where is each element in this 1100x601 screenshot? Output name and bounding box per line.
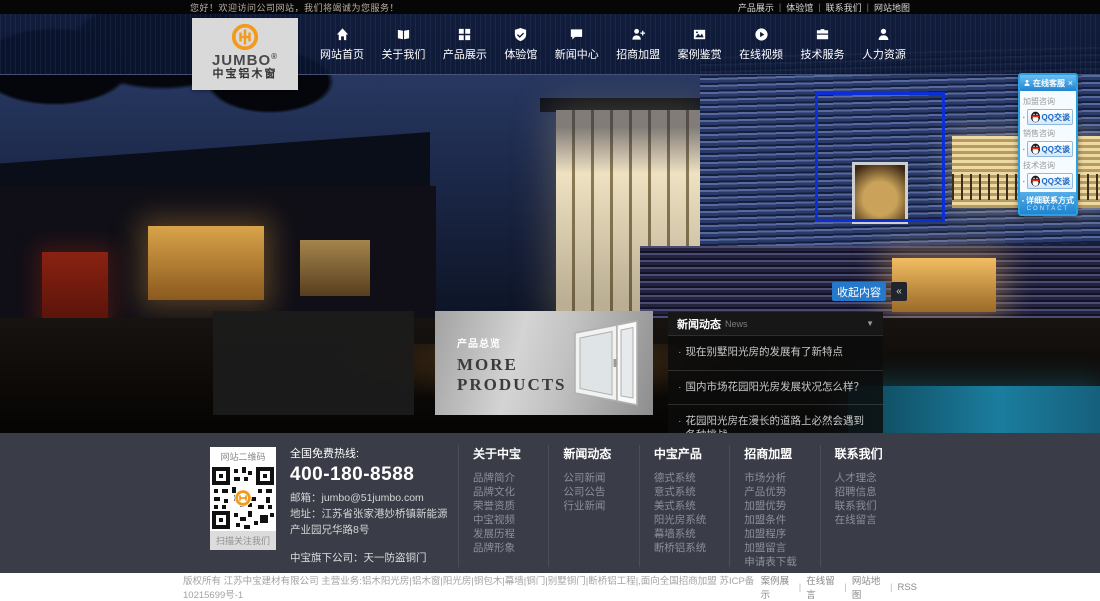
- topbar-link-contact[interactable]: 联系我们: [826, 1, 862, 14]
- hero-banner: JUMBO® 中宝铝木窗 网站首页 关于我们 产品展示 体验馆: [0, 14, 1100, 433]
- subsidiary-line: 中宝旗下公司：天一防盗铜门: [290, 550, 452, 565]
- hero-warm-window-2: [300, 240, 370, 296]
- topbar-links: 产品展示 | 体验馆 | 联系我们 | 网站地图: [738, 1, 910, 14]
- footer-link[interactable]: 阳光房系统: [654, 513, 729, 527]
- footer-link[interactable]: 美式系统: [654, 499, 729, 513]
- news-item[interactable]: ·花园阳光房在漫长的道路上必然会遇到各种挑战: [668, 404, 883, 433]
- footer-link[interactable]: 意式系统: [654, 485, 729, 499]
- shield-icon: [513, 27, 528, 42]
- news-subtitle: News: [725, 319, 748, 329]
- footer-link[interactable]: 品牌简介: [473, 471, 548, 485]
- footer-link[interactable]: 产品优势: [744, 485, 819, 499]
- footer-columns: 关于中宝 品牌简介 品牌文化 荣誉资质 中宝视频 发展历程 品牌形象 新闻动态 …: [458, 445, 910, 567]
- bottom-bar: 版权所有 江苏中宝建材有限公司 主营业务:铝木阳光房|铝木窗|阳光房|铜包木|幕…: [0, 573, 1100, 601]
- news-collapse-arrow[interactable]: ▼: [866, 319, 874, 328]
- footer-col-join: 招商加盟 市场分析 产品优势 加盟优势 加盟条件 加盟程序 加盟留言 申请表下载: [729, 445, 819, 567]
- qr-caption: 扫描关注我们: [210, 531, 276, 550]
- footer-link[interactable]: 品牌形象: [473, 541, 548, 555]
- nav-item-video[interactable]: 在线视频: [737, 23, 785, 66]
- topbar-link-sitemap[interactable]: 网站地图: [874, 1, 910, 14]
- play-icon: [754, 27, 769, 42]
- person-plus-icon: [631, 27, 646, 42]
- hero-pool: [848, 386, 1100, 433]
- hotline-phone: 400-180-8588: [290, 464, 452, 486]
- jumbo-logo-icon: [230, 22, 260, 52]
- copyright-text: 版权所有 江苏中宝建材有限公司 主营业务:铝木阳光房|铝木窗|阳光房|铜包木|幕…: [183, 573, 761, 601]
- qq-penguin-icon: [1030, 111, 1041, 123]
- collapse-control: 收起内容 «: [832, 282, 907, 301]
- qq-penguin-icon: [1030, 175, 1041, 187]
- footer-link[interactable]: 品牌文化: [473, 485, 548, 499]
- site-logo[interactable]: JUMBO® 中宝铝木窗: [192, 18, 298, 90]
- footer-link[interactable]: 断桥铝系统: [654, 541, 729, 555]
- footer-col-news: 新闻动态 公司新闻 公司公告 行业新闻: [548, 445, 638, 567]
- footer-link[interactable]: 发展历程: [473, 527, 548, 541]
- qr-code-image: [210, 465, 276, 531]
- footer-link[interactable]: 幕墙系统: [654, 527, 729, 541]
- footer-col-products: 中宝产品 德式系统 意式系统 美式系统 阳光房系统 幕墙系统 断桥铝系统: [639, 445, 729, 567]
- close-icon[interactable]: ×: [1068, 79, 1073, 88]
- person-icon: [876, 27, 891, 42]
- footer-link[interactable]: 申请表下载: [744, 555, 819, 569]
- footer-link[interactable]: 在线留言: [835, 513, 910, 527]
- contact-details-button[interactable]: 详细联系方式 CONTACT: [1020, 192, 1076, 214]
- footer-link[interactable]: 行业新闻: [563, 499, 638, 513]
- top-bar: 您好！欢迎访问公司网站，我们将竭诚为您服务！ 产品展示 | 体验馆 | 联系我们…: [0, 0, 1100, 14]
- welcome-text: 您好！欢迎访问公司网站，我们将竭诚为您服务！: [190, 1, 399, 14]
- contact-address: 地址：江苏省张家港妙桥镇新能源产业园兄华路8号: [290, 507, 452, 539]
- footer-link[interactable]: 德式系统: [654, 471, 729, 485]
- collapse-button[interactable]: 收起内容: [832, 282, 886, 301]
- logo-subtitle: 中宝铝木窗: [213, 68, 278, 81]
- service-panel-title: 在线客服: [1033, 78, 1065, 89]
- footer-link[interactable]: 人才理念: [835, 471, 910, 485]
- hero-glow-window: [892, 258, 996, 312]
- footer-col-about: 关于中宝 品牌简介 品牌文化 荣誉资质 中宝视频 发展历程 品牌形象: [458, 445, 548, 567]
- qq-chat-button[interactable]: QQ交谈: [1027, 109, 1073, 125]
- hero-warm-window: [148, 226, 264, 300]
- nav-item-home[interactable]: 网站首页: [318, 23, 366, 66]
- more-products-text: MORE PRODUCTS: [457, 355, 567, 396]
- nav-item-tech[interactable]: 技术服务: [799, 23, 847, 66]
- grid-icon: [457, 27, 472, 42]
- topbar-link-products[interactable]: 产品展示: [738, 1, 774, 14]
- nav-item-about[interactable]: 关于我们: [379, 23, 427, 66]
- footer-link[interactable]: 荣誉资质: [473, 499, 548, 513]
- selection-rectangle: [815, 92, 945, 222]
- book-icon: [396, 27, 411, 42]
- check-icon: [1023, 145, 1025, 154]
- nav-item-experience[interactable]: 体验馆: [502, 23, 539, 66]
- footer-link[interactable]: 联系我们: [835, 499, 910, 513]
- collapse-arrow-button[interactable]: «: [891, 282, 907, 301]
- products-overview-label: 产品总览: [457, 335, 501, 350]
- nav-item-join[interactable]: 招商加盟: [614, 23, 662, 66]
- nav-item-news[interactable]: 新闻中心: [553, 23, 601, 66]
- hotline-label: 全国免费热线:: [290, 445, 452, 461]
- footer-link[interactable]: 加盟条件: [744, 513, 819, 527]
- qr-card: 网站二维码: [210, 447, 276, 550]
- qq-chat-button[interactable]: QQ交谈: [1027, 173, 1073, 189]
- qr-title: 网站二维码: [210, 447, 276, 465]
- online-service-panel: 在线客服 × 加盟咨询 QQ交谈 销售咨询 QQ交谈 技术咨询 QQ交谈: [1018, 73, 1078, 216]
- logo-brand-text: JUMBO®: [212, 53, 278, 68]
- nav-item-hr[interactable]: 人力资源: [860, 23, 908, 66]
- briefcase-icon: [815, 27, 830, 42]
- footer-link[interactable]: 公司新闻: [563, 471, 638, 485]
- qq-chat-button[interactable]: QQ交谈: [1027, 141, 1073, 157]
- footer-link[interactable]: 加盟留言: [744, 541, 819, 555]
- check-icon: [1023, 177, 1025, 186]
- nav-item-products[interactable]: 产品展示: [441, 23, 489, 66]
- product-dark-panel: [213, 311, 414, 415]
- contact-chat-icon: [1022, 197, 1024, 205]
- topbar-link-experience[interactable]: 体验馆: [786, 1, 813, 14]
- footer: 网站二维码: [0, 433, 1100, 573]
- service-panel-header: 在线客服 ×: [1020, 75, 1076, 91]
- footer-contact: 全国免费热线: 400-180-8588 邮箱：jumbo@51jumbo.co…: [290, 445, 452, 565]
- service-panel-body: 加盟咨询 QQ交谈 销售咨询 QQ交谈 技术咨询 QQ交谈: [1020, 91, 1076, 192]
- agent-icon: [1023, 79, 1031, 87]
- news-list: ·现在别墅阳光房的发展有了新特点 ·国内市场花园阳光房发展状况怎么样？ ·花园阳…: [668, 335, 883, 433]
- news-item[interactable]: ·国内市场花园阳光房发展状况怎么样？: [668, 370, 883, 405]
- bottom-link-message[interactable]: 在线留言: [806, 573, 839, 601]
- more-products-panel[interactable]: 产品总览 MORE PRODUCTS: [435, 311, 653, 415]
- window-product-image: [571, 319, 643, 407]
- nav-menu: 网站首页 关于我们 产品展示 体验馆 新闻中心: [318, 14, 908, 74]
- nav-item-cases[interactable]: 案例鉴赏: [676, 23, 724, 66]
- bottom-link-sitemap[interactable]: 网站地图: [852, 573, 885, 601]
- footer-link[interactable]: 中宝视频: [473, 513, 548, 527]
- bottom-link-rss[interactable]: RSS: [897, 582, 917, 593]
- home-icon: [335, 27, 350, 42]
- main-nav: JUMBO® 中宝铝木窗 网站首页 关于我们 产品展示 体验馆: [0, 14, 1100, 75]
- footer-link[interactable]: 加盟程序: [744, 527, 819, 541]
- bottombar-links: 案例展示 | 在线留言 | 网站地图 | RSS: [761, 573, 917, 601]
- check-icon: [1023, 113, 1025, 122]
- news-item[interactable]: ·现在别墅阳光房的发展有了新特点: [668, 335, 883, 370]
- news-panel-header: 新闻动态 News ▼: [668, 312, 883, 335]
- footer-link[interactable]: 加盟优势: [744, 499, 819, 513]
- chat-icon: [569, 27, 584, 42]
- bottom-link-cases[interactable]: 案例展示: [761, 573, 794, 601]
- news-panel: 新闻动态 News ▼ ·现在别墅阳光房的发展有了新特点 ·国内市场花园阳光房发…: [668, 312, 883, 433]
- qq-penguin-icon: [1030, 143, 1041, 155]
- news-title: 新闻动态: [677, 316, 721, 332]
- hero-red-window: [42, 252, 108, 322]
- photo-icon: [692, 27, 707, 42]
- footer-col-contact: 联系我们 人才理念 招聘信息 联系我们 在线留言: [820, 445, 910, 567]
- footer-link[interactable]: 招聘信息: [835, 485, 910, 499]
- contact-email: 邮箱：jumbo@51jumbo.com: [290, 491, 452, 507]
- footer-link[interactable]: 公司公告: [563, 485, 638, 499]
- footer-link[interactable]: 市场分析: [744, 471, 819, 485]
